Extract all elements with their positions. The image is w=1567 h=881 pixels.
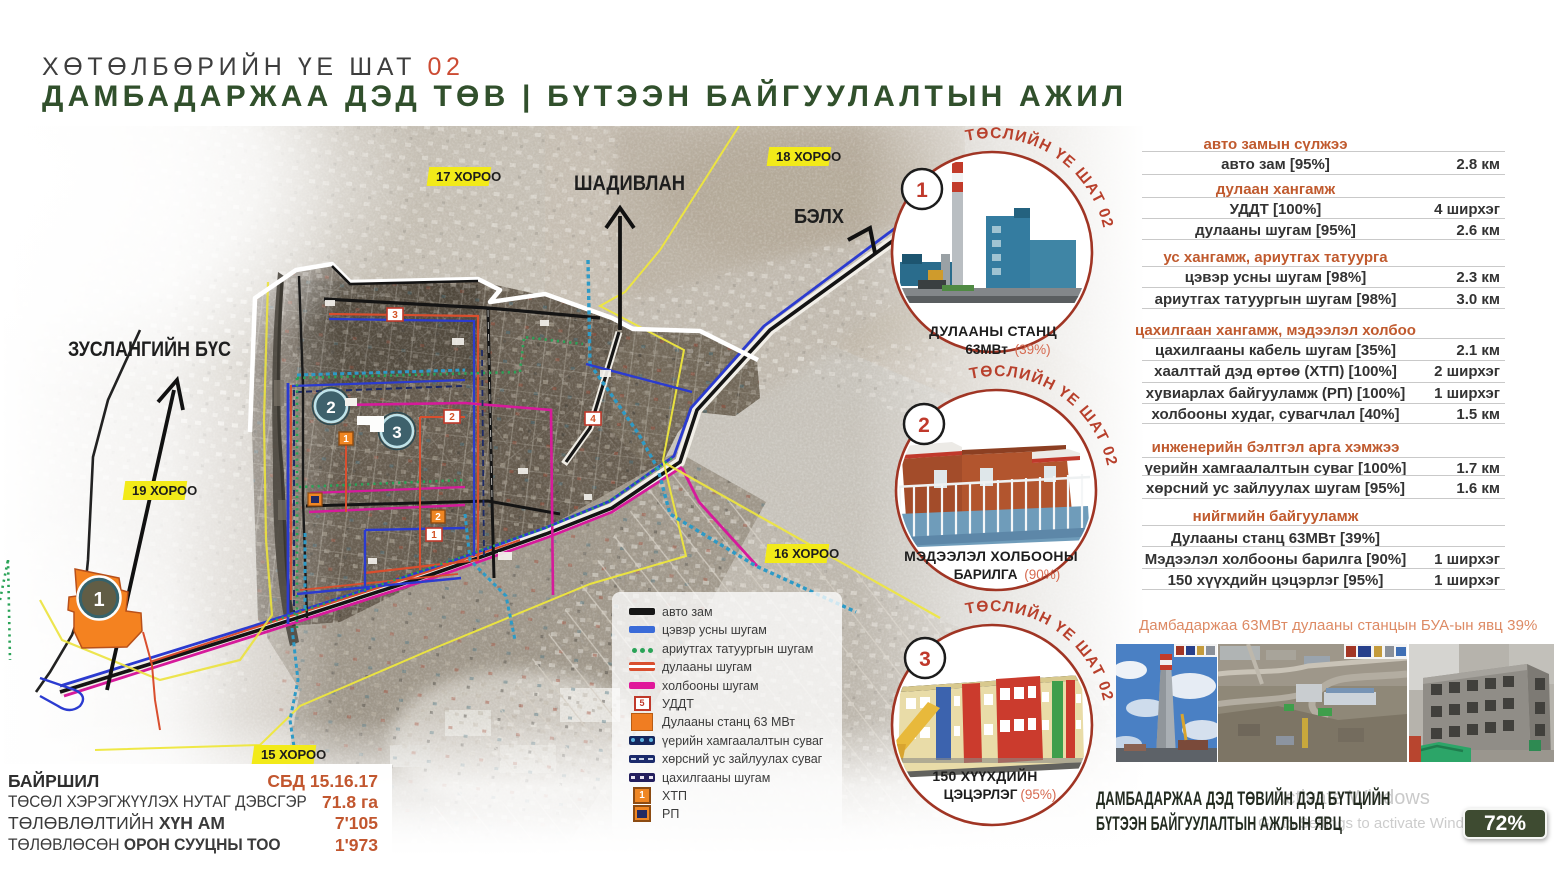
svg-text:150 ХҮҮХДИЙН: 150 ХҮҮХДИЙН	[932, 767, 1037, 784]
svg-text:3: 3	[392, 423, 401, 442]
svg-text:2: 2	[918, 414, 930, 437]
svg-text:4: 4	[590, 414, 596, 425]
svg-text:1: 1	[93, 589, 104, 611]
svg-text:ДУЛААНЫ СТАНЦ: ДУЛААНЫ СТАНЦ	[929, 323, 1057, 339]
svg-text:ЗУСЛАНГИЙН БҮС: ЗУСЛАНГИЙН БҮС	[68, 337, 231, 361]
svg-text:МЭДЭЭЛЭЛ ХОЛБООНЫ: МЭДЭЭЛЭЛ ХОЛБООНЫ	[904, 548, 1078, 564]
svg-text:2: 2	[449, 412, 455, 423]
svg-text:2: 2	[326, 398, 335, 417]
svg-text:2: 2	[435, 512, 441, 523]
svg-text:1: 1	[431, 530, 437, 541]
svg-text:18 ХОРОО: 18 ХОРОО	[776, 149, 841, 164]
svg-text:БЭЛХ: БЭЛХ	[794, 206, 845, 228]
svg-text:БАРИЛГА (90%): БАРИЛГА (90%)	[954, 567, 1060, 582]
svg-text:17 ХОРОО: 17 ХОРОО	[436, 169, 501, 184]
svg-text:ШАДИВЛАН: ШАДИВЛАН	[574, 172, 685, 195]
svg-text:15 ХОРОО: 15 ХОРОО	[261, 747, 326, 762]
svg-text:63МВт (39%): 63МВт (39%)	[965, 342, 1050, 357]
svg-text:3: 3	[919, 648, 931, 671]
svg-text:19 ХОРОО: 19 ХОРОО	[132, 483, 197, 498]
svg-text:3: 3	[392, 310, 398, 321]
svg-text:ЦЭЦЭРЛЭГ(95%): ЦЭЦЭРЛЭГ(95%)	[944, 787, 1057, 802]
svg-text:1: 1	[916, 179, 928, 202]
svg-text:16 ХОРОО: 16 ХОРОО	[774, 546, 839, 561]
svg-text:1: 1	[343, 434, 349, 445]
